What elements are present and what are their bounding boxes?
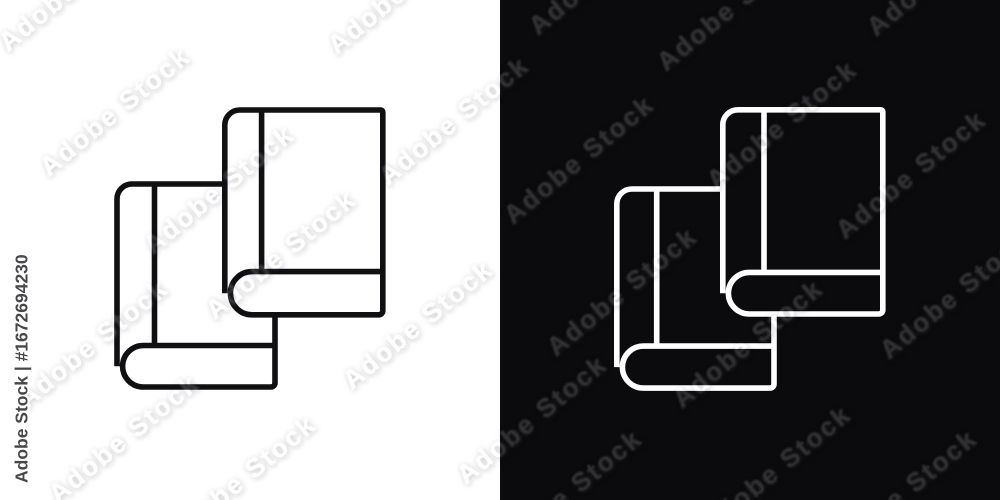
svg-text:Adobe Stock | #1672694230: Adobe Stock | #1672694230 xyxy=(12,254,32,483)
